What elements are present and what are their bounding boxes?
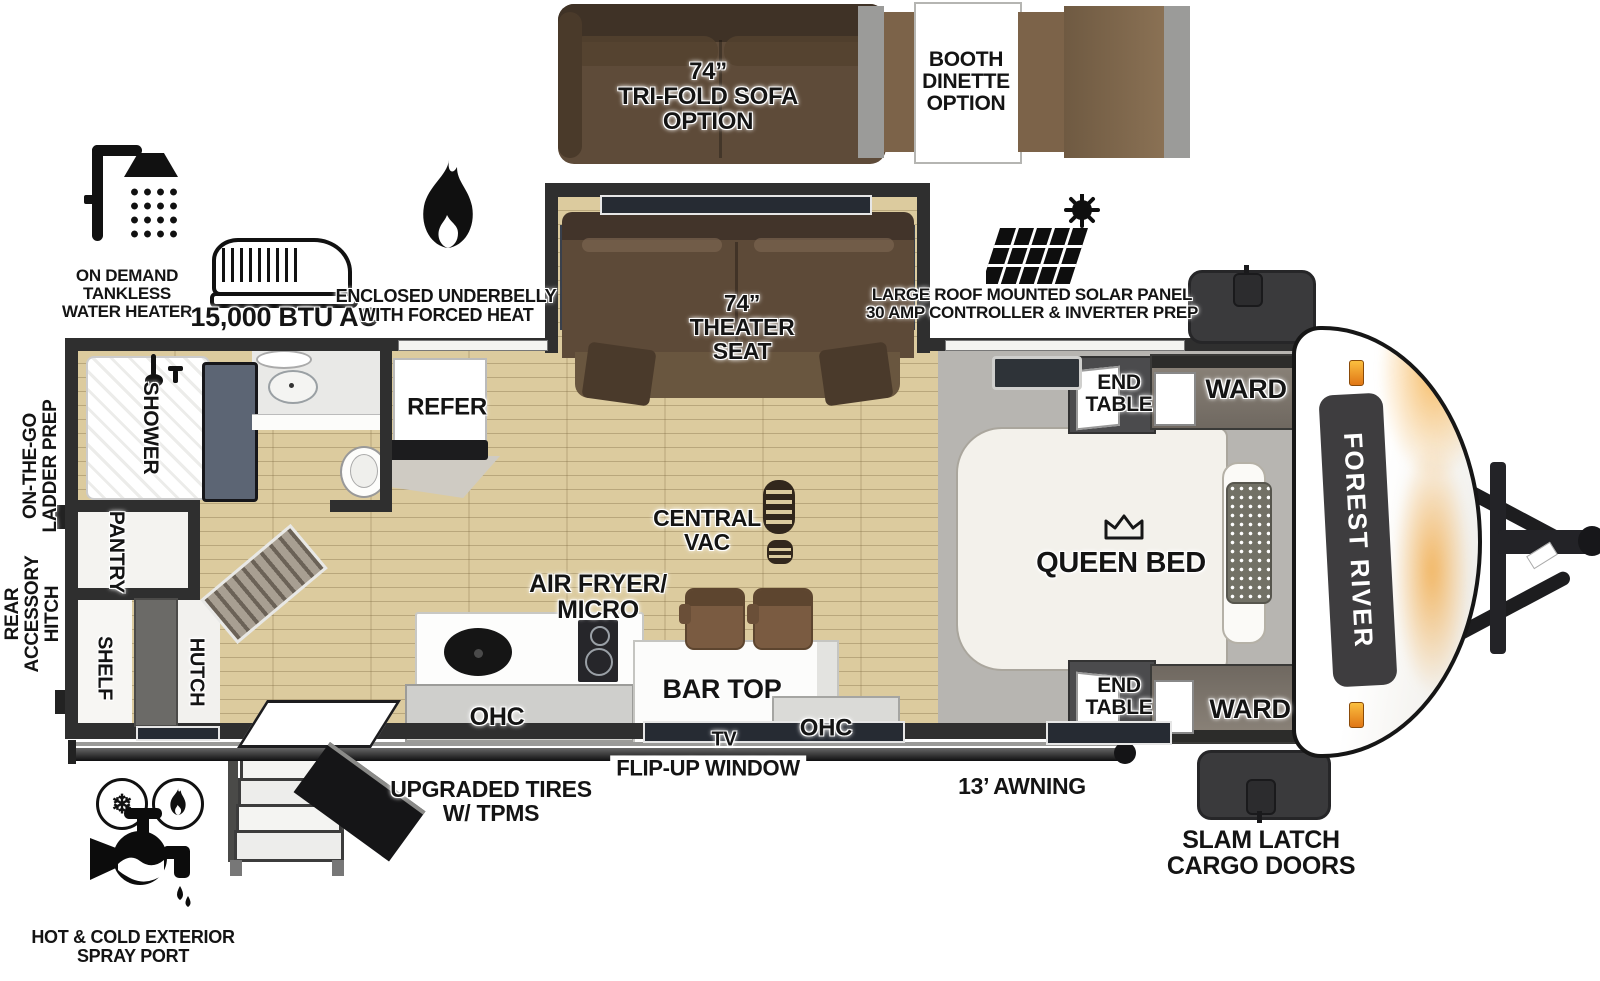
- awning-label: 13’ AWNING: [958, 774, 1086, 798]
- trifold-sofa-label: 74” TRI-FOLD SOFA OPTION: [618, 59, 798, 135]
- bar-top-label: BAR TOP: [663, 675, 782, 703]
- refer-label: REFER: [407, 394, 487, 419]
- theater-seat-label: 74” THEATER SEAT: [690, 291, 795, 363]
- dinette-end-right: [1164, 6, 1190, 158]
- cap-accent-right: [1392, 440, 1472, 700]
- pantry-interior: [78, 512, 188, 588]
- sofa-arm-left: [558, 12, 582, 158]
- hutch-label: HUTCH: [186, 638, 207, 707]
- forest-river-logo: FOREST RIVER: [1337, 431, 1379, 648]
- tires-label: UPGRADED TIRES W/ TPMS: [390, 777, 592, 825]
- bath-wall-right: [380, 338, 392, 512]
- awning-end-cap: [1114, 742, 1136, 764]
- refer-base: [388, 440, 488, 460]
- pantry-wall-bottom: [65, 588, 200, 600]
- rear-hitch-label: REAR ACCESSORY HITCH: [3, 556, 63, 673]
- kitchen-sink-drain: [474, 649, 483, 658]
- ac-unit-icon: [212, 238, 352, 310]
- underbelly-label: ENCLOSED UNDERBELLY WITH FORCED HEAT: [336, 287, 557, 325]
- cargo-door-bottom: [1197, 750, 1331, 820]
- ward-bottom-label: WARD: [1209, 695, 1290, 723]
- rear-bottom-window: [136, 726, 220, 741]
- marker-light-top: [1349, 360, 1364, 386]
- slideout-wall-left: [545, 183, 558, 353]
- window-above-refer: [398, 340, 548, 351]
- solar-label: LARGE ROOF MOUNTED SOLAR PANEL 30 AMP CO…: [866, 286, 1198, 322]
- entry-door: [237, 700, 401, 748]
- stove-cooktop: [578, 620, 618, 682]
- roof-vent: [992, 356, 1082, 390]
- dinette-back-right: [1064, 6, 1164, 158]
- tv-label: TV: [712, 730, 737, 751]
- central-vac-label: CENTRAL VAC: [653, 506, 761, 554]
- awning-left-bracket: [68, 740, 76, 764]
- tongue-coupler: [1578, 526, 1600, 556]
- shower-valve-symbol: [168, 366, 186, 384]
- marker-light-bottom: [1349, 702, 1364, 728]
- slideout-window: [600, 195, 872, 215]
- hitch-receiver-bottom: [55, 690, 65, 714]
- shower-label: SHOWER: [139, 382, 161, 475]
- bedroom-bottom-window: [1046, 721, 1172, 745]
- slideout-wall-right: [917, 183, 930, 353]
- dinette-bench-left: [884, 12, 914, 152]
- flame-icon: [416, 160, 480, 266]
- toilet-seat: [350, 454, 378, 488]
- flip-up-window-pane: [643, 721, 905, 743]
- ohc-right-label: OHC: [800, 715, 852, 740]
- booth-dinette-option: [858, 0, 1190, 164]
- tongue-cross-member: [1490, 462, 1506, 654]
- dinette-end-left: [858, 6, 884, 158]
- booth-dinette-label: BOOTH DINETTE OPTION: [922, 49, 1010, 115]
- wall-left: [65, 338, 78, 738]
- bed-pillow: [1226, 482, 1272, 604]
- end-table-bottom-label: END TABLE: [1086, 675, 1153, 719]
- bath-sink-drain: [289, 383, 294, 388]
- front-cap: FOREST RIVER: [1292, 326, 1482, 758]
- cargo-doors-label: SLAM LATCH CARGO DOORS: [1167, 827, 1355, 880]
- cargo-door-top: [1188, 270, 1316, 344]
- solar-panel-icon: [986, 194, 1110, 288]
- queen-bed-label: QUEEN BED: [1036, 548, 1206, 578]
- shelf-label: SHELF: [94, 636, 115, 700]
- spray-port-faucet-icon: [88, 806, 198, 914]
- pantry-label: PANTRY: [105, 511, 127, 593]
- boot-print-icon: [757, 478, 801, 566]
- dinette-bench-right: [1018, 12, 1064, 152]
- bar-stool-left: [685, 588, 745, 650]
- theater-console-right: [818, 342, 893, 407]
- bar-stool-right: [753, 588, 813, 650]
- crown-icon: [1102, 512, 1146, 542]
- shower-door: [202, 362, 258, 502]
- bedroom-top-window: [945, 340, 1185, 351]
- bath-wall-bottom-left: [65, 500, 195, 512]
- ward-top-label: WARD: [1205, 375, 1286, 403]
- bath-counter-edge: [252, 414, 380, 430]
- bath-vent-oval: [256, 350, 312, 369]
- floorplan-diagram: 74” TRI-FOLD SOFA OPTION BOOTH DINETTE O…: [0, 0, 1600, 981]
- water-heater-label: ON DEMAND TANKLESS WATER HEATER: [62, 267, 192, 321]
- awning-rail: [74, 742, 1124, 746]
- pantry-wall-right: [188, 500, 200, 600]
- hutch-cabinet: [134, 598, 178, 727]
- theater-console-left: [581, 342, 656, 407]
- ohc-left-label: OHC: [470, 704, 525, 730]
- shower-head-icon: [82, 145, 182, 257]
- ladder-prep-label: ON-THE-GO LADDER PREP: [21, 400, 61, 533]
- bath-wall-bottom-right: [330, 500, 392, 512]
- spray-port-label: HOT & COLD EXTERIOR SPRAY PORT: [31, 928, 234, 966]
- flip-up-window-label: FLIP-UP WINDOW: [610, 755, 806, 780]
- end-table-top-label: END TABLE: [1086, 372, 1153, 416]
- air-fryer-micro-label: AIR FRYER/ MICRO: [529, 571, 667, 624]
- awning-bar: [74, 748, 1124, 761]
